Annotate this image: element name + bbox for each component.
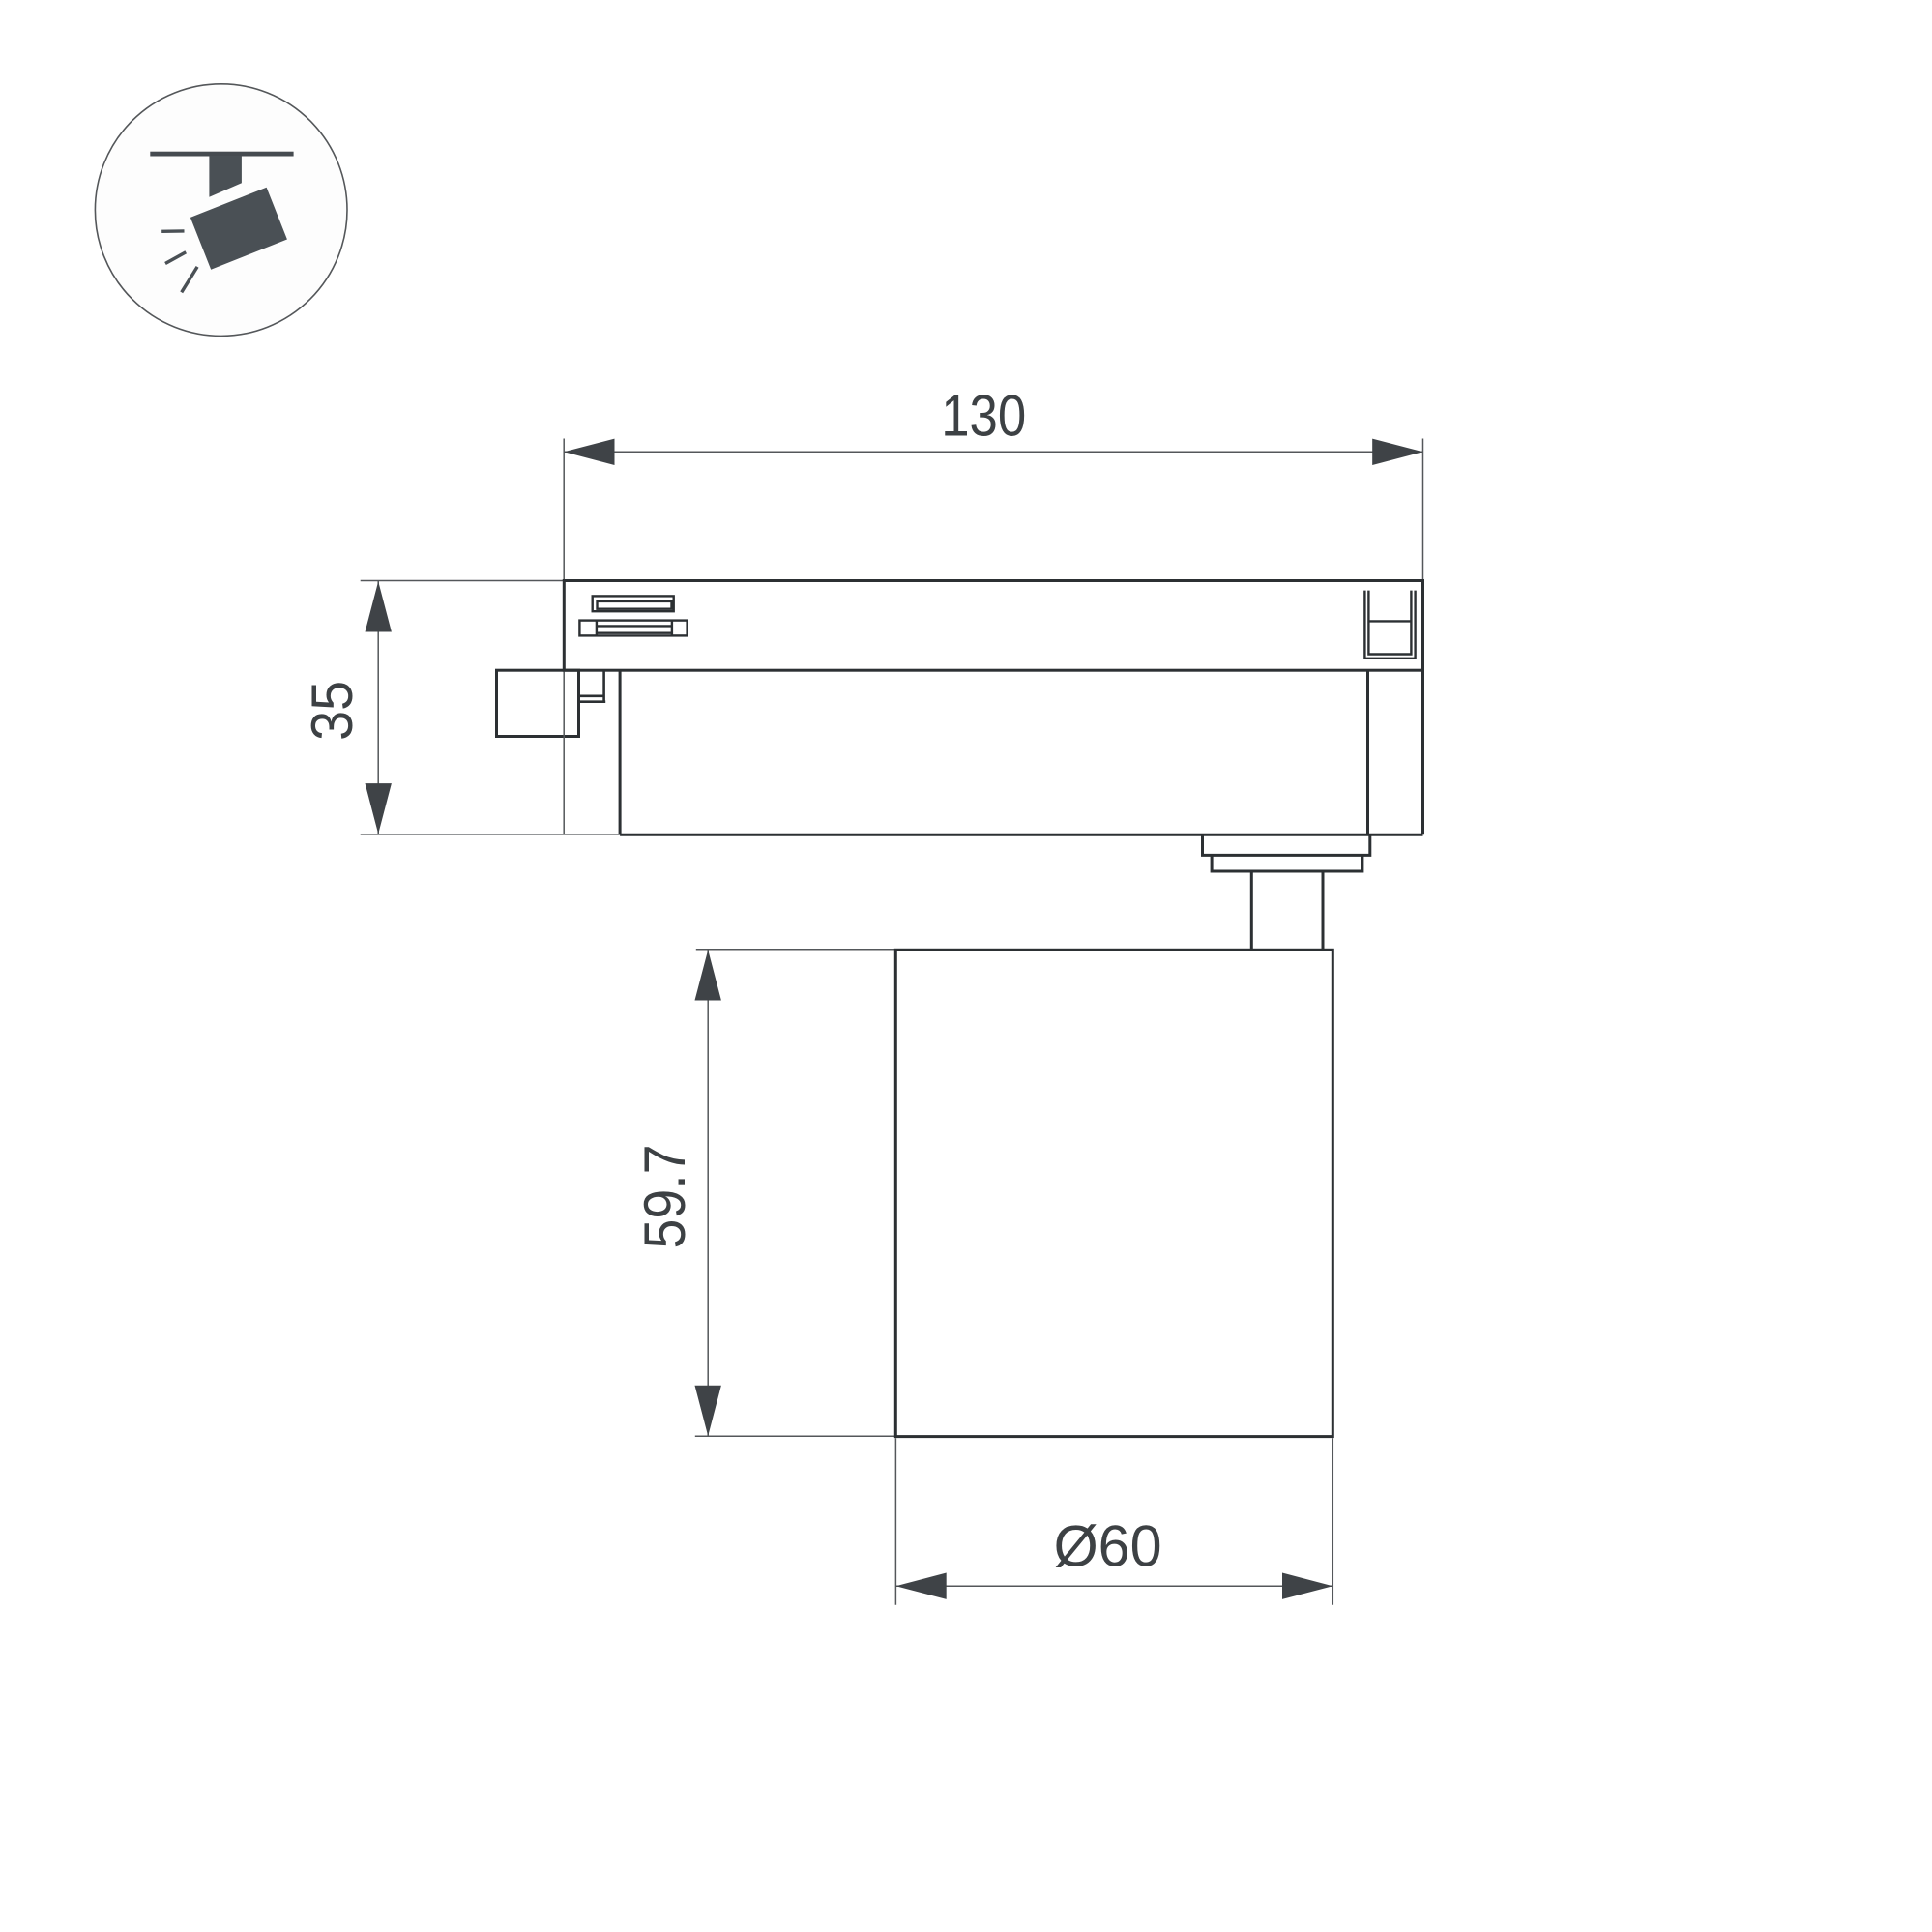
svg-text:59.7: 59.7 <box>632 1145 697 1249</box>
svg-text:Ø60: Ø60 <box>1054 1514 1162 1579</box>
svg-text:130: 130 <box>941 384 1026 449</box>
svg-text:35: 35 <box>300 681 365 741</box>
